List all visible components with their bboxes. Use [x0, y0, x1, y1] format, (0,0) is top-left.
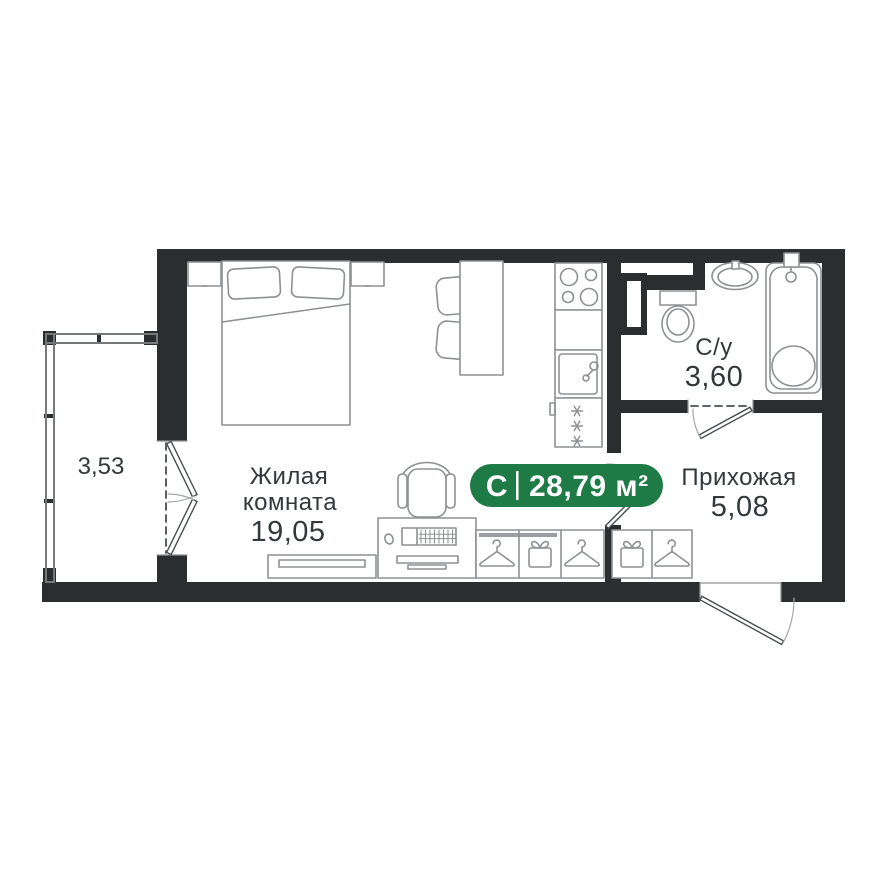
closet-rod	[479, 533, 557, 537]
tv-stand	[268, 555, 376, 578]
kitchen-counter	[555, 310, 602, 350]
door-swing-arc	[783, 598, 794, 643]
entrance-door	[700, 596, 794, 644]
balcony-window-top	[46, 334, 157, 343]
wall-bath-bottom-left	[621, 400, 688, 413]
door-leaf	[167, 441, 197, 496]
bathroom-name: С/у	[695, 334, 733, 361]
balcony-door	[166, 441, 197, 554]
wall-shaft-beam	[645, 275, 705, 290]
bathroom-door	[691, 406, 752, 438]
door-leaf	[167, 499, 197, 554]
door-swing-arc	[168, 496, 194, 502]
desk	[378, 518, 476, 578]
washing-machine	[550, 398, 602, 447]
badge-type: С	[486, 470, 508, 503]
toilet	[660, 291, 696, 342]
kitchen-sink	[555, 350, 602, 398]
wardrobe-hallway	[612, 530, 692, 578]
door-swing-arc	[168, 494, 194, 500]
floor-plan: Жилая комната 19,05 С/у 3,60 Прихожая 5,…	[0, 0, 880, 880]
hallway-name: Прихожая	[681, 464, 796, 491]
washbasin	[712, 261, 758, 290]
wall-bottom-right	[781, 582, 845, 602]
balcony-window-left	[46, 334, 54, 582]
vent-shaft-cavity	[627, 281, 641, 327]
toilet-tank	[660, 291, 696, 305]
tub-faucet	[784, 253, 799, 282]
chair-seat	[408, 469, 446, 517]
wardrobe-living	[476, 530, 604, 578]
wall-bath-bottom-right	[753, 400, 822, 413]
wall-kitchen-partition	[607, 263, 621, 453]
hallway-area: 5,08	[711, 491, 769, 523]
living-room-area: 19,05	[250, 516, 325, 548]
nightstand	[188, 262, 221, 286]
balcony-area: 3,53	[78, 453, 125, 480]
door-leaf	[700, 596, 783, 644]
badge-area: 28,79 м²	[529, 470, 649, 503]
stove	[555, 263, 602, 310]
bathroom-area: 3,60	[685, 361, 743, 393]
nightstand	[351, 262, 384, 286]
total-area-badge: С 28,79 м²	[470, 464, 663, 507]
basin-tap	[732, 261, 739, 269]
wall-shaft-connector	[693, 263, 705, 275]
office-chair	[398, 463, 455, 518]
floor-plan-image: Жилая комната 19,05 С/у 3,60 Прихожая 5,…	[0, 0, 880, 880]
bed	[222, 261, 350, 425]
door-swing-arc	[693, 409, 700, 437]
wall-right	[822, 249, 845, 602]
chair-armrest	[398, 474, 407, 508]
chair-armrest	[446, 474, 455, 508]
dining-table	[460, 261, 503, 375]
wall-left-upper	[157, 249, 187, 441]
wall-bottom-left	[42, 582, 700, 602]
badge-divider	[516, 471, 519, 500]
living-room-name: Жилая	[250, 463, 328, 490]
bathtub	[766, 253, 821, 393]
door-leaf	[699, 407, 752, 438]
living-room-name: комната	[243, 489, 337, 516]
